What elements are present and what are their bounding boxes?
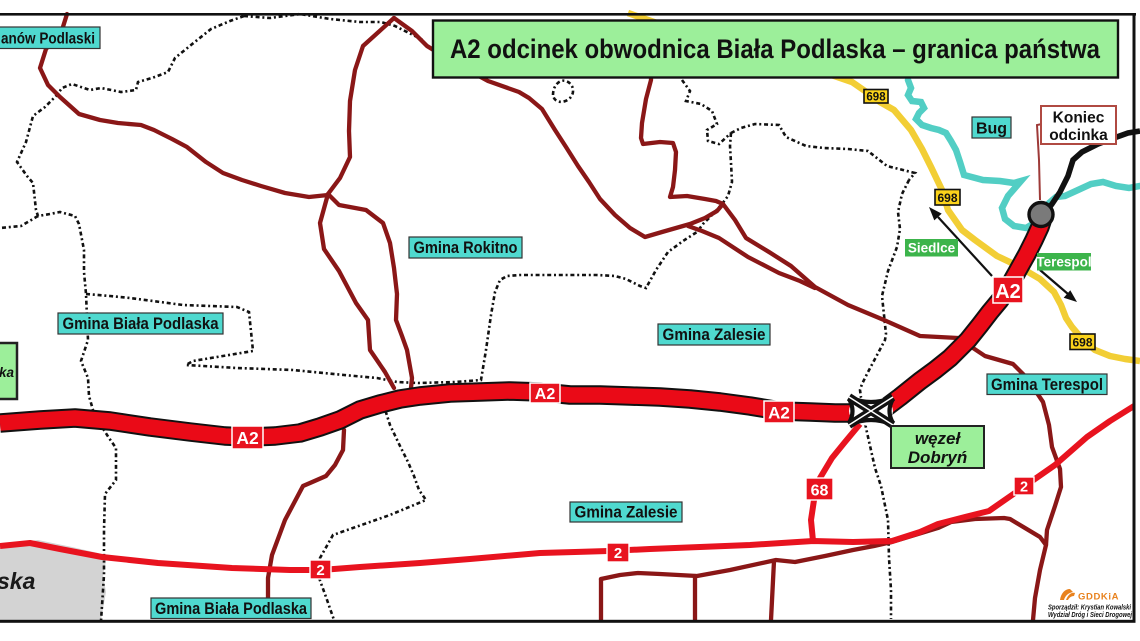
- svg-text:A2 odcinek obwodnica Biała Pod: A2 odcinek obwodnica Biała Podlaska – gr…: [450, 34, 1101, 64]
- svg-text:Gmina Biała Podlaska: Gmina Biała Podlaska: [155, 600, 308, 618]
- svg-text:2: 2: [614, 545, 622, 562]
- svg-text:2: 2: [316, 562, 324, 579]
- svg-text:Terespol: Terespol: [1036, 255, 1091, 270]
- svg-text:A2: A2: [995, 281, 1021, 303]
- svg-text:698: 698: [937, 191, 957, 205]
- svg-text:Gmina Rokitno: Gmina Rokitno: [414, 239, 518, 257]
- svg-text:Gmina Biała Podlaska: Gmina Biała Podlaska: [63, 315, 220, 333]
- svg-text:A2: A2: [236, 428, 259, 448]
- svg-text:ka: ka: [0, 365, 15, 380]
- svg-text:węzeł: węzeł: [915, 429, 962, 448]
- svg-text:anów Podlaski: anów Podlaski: [1, 31, 95, 48]
- svg-text:68: 68: [811, 483, 829, 500]
- svg-text:Koniec: Koniec: [1053, 110, 1105, 127]
- svg-text:GDDKiA: GDDKiA: [1078, 592, 1119, 603]
- svg-text:Gmina Zalesie: Gmina Zalesie: [575, 504, 678, 522]
- svg-text:ska: ska: [0, 568, 36, 594]
- svg-text:A2: A2: [768, 404, 790, 423]
- svg-text:odcinka: odcinka: [1049, 127, 1108, 144]
- svg-text:698: 698: [866, 92, 886, 104]
- svg-text:Wydział Dróg i Sieci Drogowej: Wydział Dróg i Sieci Drogowej: [1048, 610, 1133, 619]
- svg-text:2: 2: [1020, 480, 1028, 496]
- svg-text:Siedlce: Siedlce: [908, 241, 956, 256]
- svg-text:A2: A2: [535, 386, 556, 403]
- svg-text:Bug: Bug: [976, 121, 1007, 138]
- svg-text:698: 698: [1072, 336, 1092, 350]
- svg-text:Dobryń: Dobryń: [908, 448, 968, 467]
- svg-text:Gmina Terespol: Gmina Terespol: [991, 376, 1103, 394]
- svg-text:Gmina Zalesie: Gmina Zalesie: [663, 326, 766, 344]
